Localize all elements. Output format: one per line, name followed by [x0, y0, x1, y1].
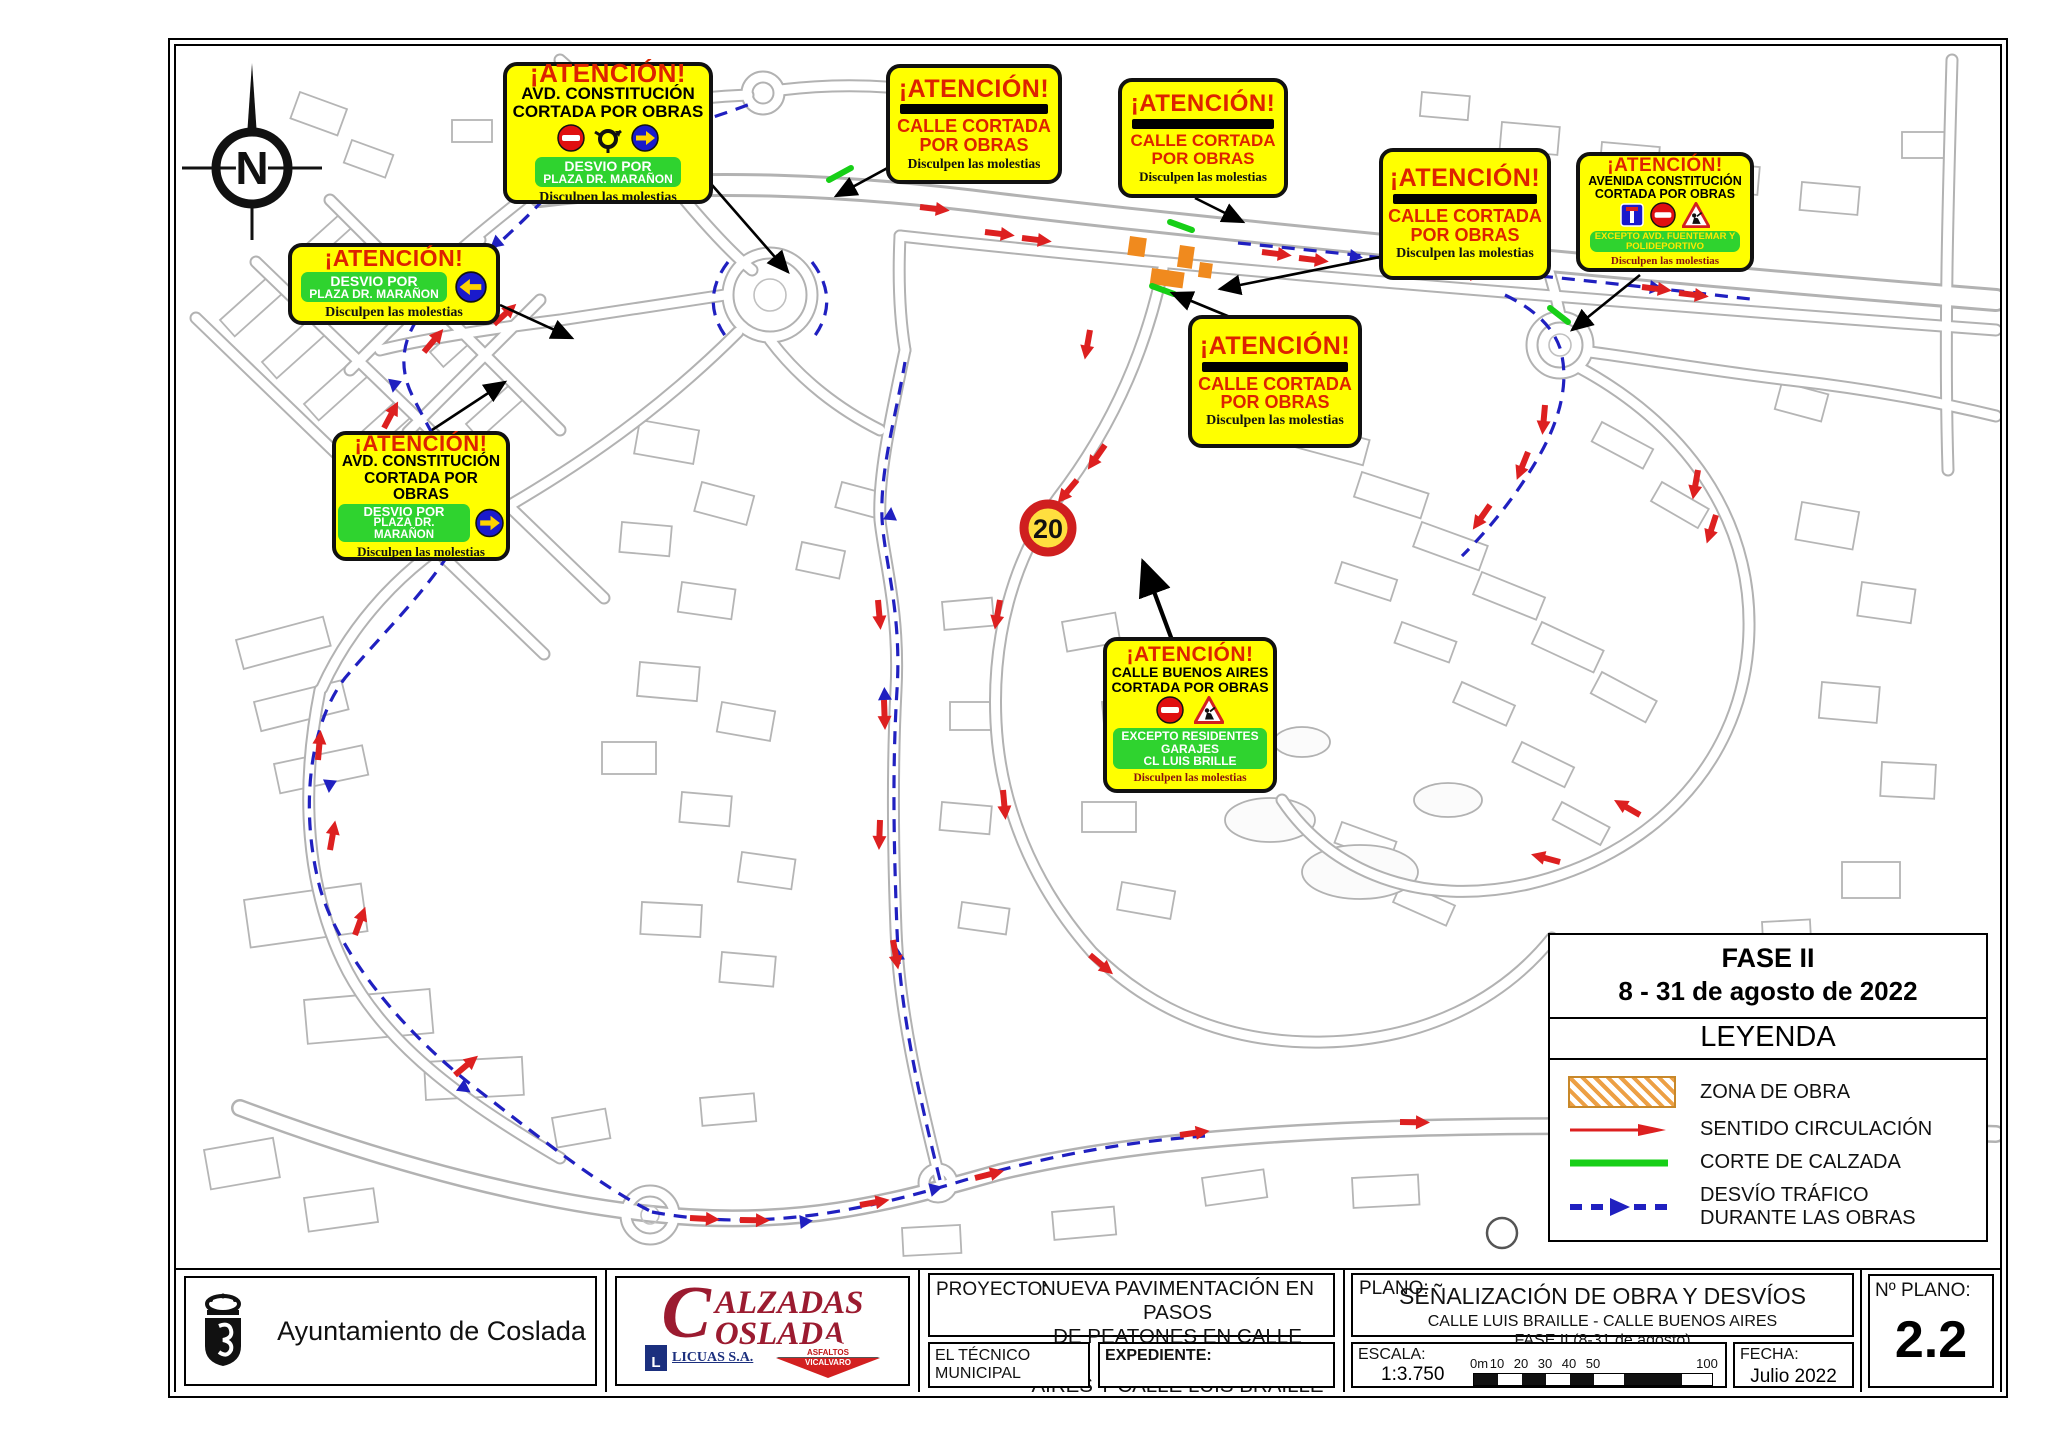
sign-calle-cortada-2: ¡ATENCIÓN! CALLE CORTADA POR OBRAS Discu… — [1118, 78, 1288, 198]
sign-line: POR OBRAS — [919, 136, 1028, 155]
sign-line: CORTADA POR OBRAS — [1595, 188, 1735, 201]
sign-line: CALLE CORTADA — [1198, 375, 1352, 394]
speed-limit-20-sign: 20 — [1024, 504, 1072, 552]
legend-item-circulation: SENTIDO CIRCULACIÓN — [1568, 1118, 1968, 1141]
exception-green-box: EXCEPTO RESIDENTES GARAJES CL LUIS BRILL… — [1113, 728, 1266, 769]
phase-title: FASE II — [1554, 943, 1982, 974]
titleblock-cell-municipality: Ayuntamiento de Coslada — [176, 1270, 607, 1392]
sign-icons — [1620, 202, 1710, 228]
calzadas-logo-initial: C — [662, 1284, 711, 1343]
sign-title: ¡ATENCIÓN! — [1131, 93, 1276, 116]
legend-item-work-zone: ZONA DE OBRA — [1568, 1076, 1968, 1108]
roadworks-icon — [1682, 202, 1710, 228]
plan-number-label: Nº PLANO: — [1875, 1280, 1971, 1302]
sign-title: ¡ATENCIÓN! — [1607, 157, 1722, 175]
escala-value: 1:3.750 — [1381, 1364, 1444, 1386]
detour-dashed-line-icon — [1568, 1196, 1672, 1218]
svg-text:20: 20 — [1033, 514, 1063, 544]
sign-footer: Disculpen las molestias — [325, 306, 463, 320]
arrow-right-icon — [631, 124, 659, 152]
sign-footer: Disculpen las molestias — [1396, 247, 1534, 261]
plano-label: PLANO: — [1359, 1278, 1429, 1300]
titleblock-cell-plano: PLANO: SEÑALIZACIÓN DE OBRA Y DESVÍOS CA… — [1345, 1270, 1862, 1392]
licuas-logo: L LICUAS S.A. — [645, 1345, 753, 1371]
map-area: N 20 ¡ATENCIÓN! AVD. CONSTITUCIÓN CORTAD… — [176, 46, 2000, 1268]
sign-footer: Disculpen las molestias — [357, 545, 485, 558]
fecha-label: FECHA: — [1740, 1346, 1799, 1364]
sign-avd-constitucion-cortada-desvio-1: ¡ATENCIÓN! AVD. CONSTITUCIÓN CORTADA POR… — [503, 62, 713, 204]
no-entry-icon — [557, 124, 585, 152]
no-entry-icon — [1156, 696, 1184, 724]
road-closed-bar — [1393, 194, 1537, 204]
sign-title: ¡ATENCIÓN! — [325, 248, 464, 270]
asfaltos-vicalvaro-logo: ASFALTOS VICALVARO — [776, 1338, 880, 1378]
legend-label: DESVÍO TRÁFICO DURANTE LAS OBRAS — [1700, 1184, 1916, 1230]
sign-title: ¡ATENCIÓN! — [899, 78, 1049, 102]
no-entry-icon — [1650, 202, 1676, 228]
proyecto-label: PROYECTO: — [936, 1279, 1048, 1301]
road-cut-line-icon — [1568, 1158, 1672, 1168]
legend-label: SENTIDO CIRCULACIÓN — [1700, 1118, 1932, 1141]
titleblock-cell-contractor: C ALZADAS OSLADA L LICUAS S.A. ASFALTOS … — [607, 1270, 920, 1392]
sign-footer: Disculpen las molestias — [908, 157, 1041, 171]
sign-footer: Disculpen las molestias — [1611, 256, 1719, 267]
traffic-direction-arrow-icon — [1568, 1122, 1672, 1138]
road-closed-bar — [1202, 362, 1347, 372]
sign-line: CALLE CORTADA — [897, 117, 1051, 136]
licuas-logo-mark: L — [645, 1345, 667, 1371]
sign-calle-buenos-aires-cortada: ¡ATENCIÓN! CALLE BUENOS AIRES CORTADA PO… — [1103, 637, 1277, 793]
phase-dates: 8 - 31 de agosto de 2022 — [1554, 976, 1982, 1007]
plan-sheet: N 20 ¡ATENCIÓN! AVD. CONSTITUCIÓN CORTAD… — [0, 0, 2048, 1448]
licuas-name: LICUAS S.A. — [672, 1350, 753, 1366]
coslada-coat-of-arms-icon — [195, 1292, 251, 1370]
sign-line: CORTADA POR OBRAS — [338, 471, 504, 503]
titleblock-cell-proyecto: PROYECTO: NUEVA PAVIMENTACIÓN EN PASOS D… — [920, 1270, 1345, 1392]
sign-line: AVD. CONSTITUCIÓN — [342, 454, 500, 470]
sign-title: ¡ATENCIÓN! — [1200, 335, 1350, 359]
asfaltos-label: ASFALTOS — [776, 1338, 880, 1358]
roundabout-icon — [593, 123, 623, 153]
sign-footer: Disculpen las molestias — [1133, 773, 1246, 785]
detour-green-box: DESVIO POR PLAZA DR. MARAÑON — [338, 504, 470, 543]
arrow-right-icon — [475, 508, 504, 538]
tecnico-label: EL TÉCNICO MUNICIPAL — [935, 1347, 1088, 1383]
dead-end-icon — [1620, 203, 1644, 227]
legend-panel: FASE II 8 - 31 de agosto de 2022 LEYENDA… — [1548, 933, 1988, 1242]
municipality-name: Ayuntamiento de Coslada — [277, 1316, 586, 1347]
drawing-frame-inner: N 20 ¡ATENCIÓN! AVD. CONSTITUCIÓN CORTAD… — [174, 44, 2002, 1392]
sign-title: ¡ATENCIÓN! — [355, 434, 488, 455]
sign-footer: Disculpen las molestias — [1139, 170, 1267, 183]
sign-line: CORTADA POR OBRAS — [1111, 680, 1268, 695]
vicalvaro-label: VICALVARO — [776, 1358, 880, 1378]
sign-icons — [557, 123, 659, 153]
sign-desvio-plaza-maranon: ¡ATENCIÓN! DESVIO POR PLAZA DR. MARAÑON … — [288, 243, 500, 325]
escala-label: ESCALA: — [1358, 1346, 1426, 1364]
legend-label: ZONA DE OBRA — [1700, 1081, 1850, 1104]
compass-north-icon: N — [182, 63, 322, 240]
sign-line: CALLE CORTADA — [1130, 132, 1275, 150]
sign-line: CALLE CORTADA — [1388, 207, 1542, 226]
sign-line: POR OBRAS — [1410, 226, 1519, 245]
work-zone-swatch — [1568, 1076, 1676, 1108]
detour-green-box: DESVIO POR PLAZA DR. MARAÑON — [301, 272, 447, 303]
road-closed-bar — [900, 104, 1047, 114]
drawing-frame: N 20 ¡ATENCIÓN! AVD. CONSTITUCIÓN CORTAD… — [168, 38, 2008, 1398]
sign-title: ¡ATENCIÓN! — [1390, 167, 1540, 191]
sign-calle-cortada-4: ¡ATENCIÓN! CALLE CORTADA POR OBRAS Discu… — [1188, 315, 1362, 448]
sign-calle-cortada-1: ¡ATENCIÓN! CALLE CORTADA POR OBRAS Discu… — [886, 64, 1062, 184]
svg-text:N: N — [235, 142, 268, 194]
sign-line: AVD. CONSTITUCIÓN — [521, 85, 694, 103]
expediente-label: EXPEDIENTE: — [1105, 1347, 1212, 1365]
sign-line: POR OBRAS — [1152, 150, 1255, 168]
sign-line: AVENIDA CONSTITUCIÓN — [1588, 175, 1741, 188]
sign-calle-cortada-3: ¡ATENCIÓN! CALLE CORTADA POR OBRAS Discu… — [1379, 148, 1551, 280]
sign-footer: Disculpen las molestias — [1206, 414, 1344, 428]
sign-icons — [1156, 696, 1224, 724]
sign-line: POR OBRAS — [1220, 393, 1329, 412]
phase-block: FASE II 8 - 31 de agosto de 2022 — [1550, 935, 1986, 1019]
sign-footer: Disculpen las molestias — [539, 191, 677, 205]
sign-line: CALLE BUENOS AIRES — [1112, 665, 1269, 680]
sign-title: ¡ATENCIÓN! — [530, 61, 686, 86]
fecha-value: Julio 2022 — [1735, 1366, 1852, 1388]
sign-title: ¡ATENCIÓN! — [1126, 645, 1253, 665]
exception-green-box: EXCEPTO AVD. FUENTEMAR Y POLIDEPORTIVO — [1590, 231, 1741, 252]
arrow-left-icon — [455, 271, 487, 303]
road-closed-bar — [1132, 119, 1274, 129]
sign-avd-constitucion-cortada-desvio-2: ¡ATENCIÓN! AVD. CONSTITUCIÓN CORTADA POR… — [332, 431, 510, 561]
sign-line: CORTADA POR OBRAS — [513, 103, 704, 121]
legend-header: LEYENDA — [1550, 1019, 1986, 1060]
detour-green-box: DESVIO POR PLAZA DR. MARAÑON — [535, 157, 681, 188]
roadworks-icon — [1194, 696, 1224, 724]
legend-label: CORTE DE CALZADA — [1700, 1151, 1901, 1174]
title-block: Ayuntamiento de Coslada C ALZADAS OSLADA… — [176, 1268, 2000, 1392]
legend-item-detour: DESVÍO TRÁFICO DURANTE LAS OBRAS — [1568, 1184, 1968, 1230]
plan-number-value: 2.2 — [1870, 1310, 1992, 1370]
legend-item-road-cut: CORTE DE CALZADA — [1568, 1151, 1968, 1174]
titleblock-cell-plan-number: Nº PLANO: 2.2 — [1862, 1270, 2000, 1392]
map-circle-marker — [1487, 1218, 1517, 1248]
scale-bar: 0m 10 20 30 40 50 100 — [1473, 1356, 1711, 1388]
contractor-name-top: ALZADAS — [715, 1288, 864, 1319]
sign-avenida-constitucion-excepto-fuentemar: ¡ATENCIÓN! AVENIDA CONSTITUCIÓN CORTADA … — [1576, 152, 1754, 272]
